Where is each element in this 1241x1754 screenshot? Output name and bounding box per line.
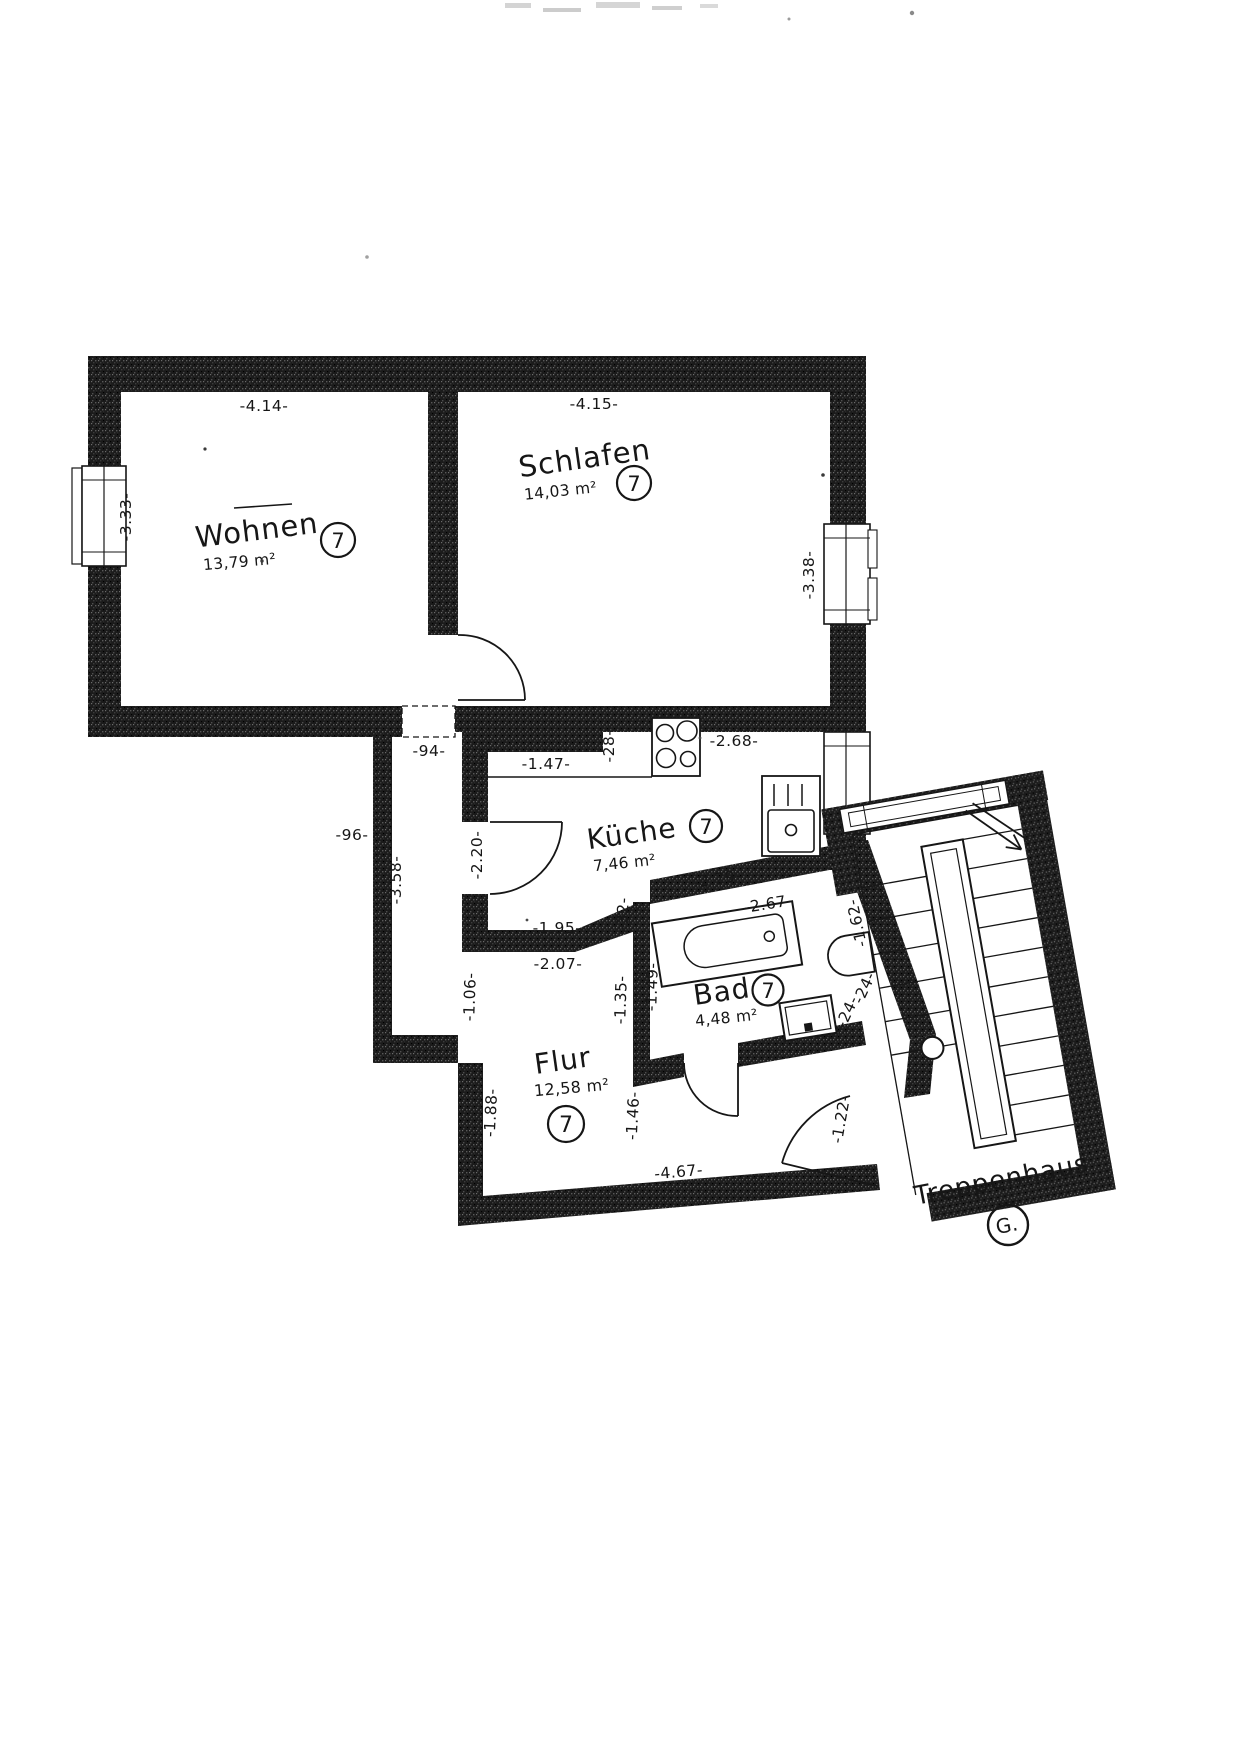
dim-opening-94: -94- (413, 742, 446, 760)
room-labels: Wohnen 13,79 m² 7 Schlafen 14,03 m² 7 Kü… (193, 432, 1091, 1245)
wall-kueche-top (455, 706, 830, 732)
dim-wohnen-height: -3.33- (117, 493, 135, 542)
dim-corridor-358: -3.58- (387, 856, 405, 905)
dim-flur-146: -1.46- (623, 1091, 644, 1141)
dim-flur-188: -1.88- (481, 1088, 502, 1138)
unit-number-bad: 7 (761, 979, 774, 1003)
wall-kueche-ledge (488, 732, 603, 752)
dim-flur-106: -1.06- (460, 972, 480, 1021)
dim-kueche-195: -1.95- (533, 919, 582, 937)
wall-kueche-left-upper (462, 732, 488, 822)
unit-number-wohnen: 7 (331, 529, 344, 553)
room-name-flur: Flur (532, 1040, 593, 1081)
room-name-bad: Bad (691, 971, 752, 1012)
kitchen-sink-icon (762, 776, 820, 856)
dim-flur-207: -2.07- (534, 955, 583, 973)
dim-wohnen-width: -4.14- (240, 397, 289, 415)
dim-bad-229: -2.29- (692, 866, 743, 891)
unit-number-schlafen: 7 (627, 472, 640, 496)
opening-wohnen-corridor (402, 706, 455, 737)
floor-letter-treppenhaus: G. (994, 1211, 1020, 1239)
floor-plan-drawing: -4.14- -4.15- -3.33- -3.38- -94- -96- -3… (0, 0, 1241, 1754)
dim-corridor-96: -96- (336, 826, 369, 844)
door-schlafen (458, 635, 525, 700)
room-label-kueche: Küche 7,46 m² 7 (585, 810, 722, 875)
dim-kueche-28: -28- (600, 730, 618, 763)
dim-schlafen-height: -3.38- (800, 551, 818, 600)
dim-entrance-122: -1.22- (828, 1094, 854, 1145)
unit-number-flur: 7 (559, 1113, 573, 1138)
window-schlafen-right (824, 524, 877, 624)
wall-treppenhaus-right (1012, 771, 1115, 1195)
wall-kueche-left-lower (462, 894, 488, 934)
room-label-wohnen: Wohnen 13,79 m² 7 (193, 504, 355, 574)
room-label-schlafen: Schlafen 14,03 m² 7 (516, 432, 652, 504)
dim-kueche-268: -2.68- (710, 732, 759, 750)
dim-kueche-32: -32- (613, 897, 633, 931)
room-name-kueche: Küche (585, 811, 679, 856)
unit-number-kueche: 7 (699, 815, 712, 839)
room-area-wohnen: 13,79 m² (202, 550, 276, 574)
scan-stroke-artifact (234, 504, 292, 508)
wall-top-outer (88, 356, 866, 392)
wall-wohnen-bottom (121, 706, 402, 737)
dim-kueche-147: -1.47- (522, 755, 571, 773)
stair-stringer-wall (921, 839, 1015, 1148)
dim-bad-149: -1.49- (642, 962, 662, 1011)
wall-corridor-step (373, 1035, 458, 1063)
toilet-icon (779, 995, 836, 1041)
room-area-kueche: 7,46 m² (592, 851, 656, 875)
wall-flur-left (458, 1063, 483, 1198)
dim-kueche-door-220: -2.20- (468, 831, 486, 880)
room-name-wohnen: Wohnen (193, 506, 320, 555)
wall-wohnen-schlafen-divider (428, 392, 458, 635)
door-kueche (490, 822, 562, 894)
floor-plan-page: -4.14- -4.15- -3.33- -3.38- -94- -96- -3… (0, 0, 1241, 1754)
stove-icon (652, 718, 700, 776)
dim-flur-135: -1.35- (611, 975, 631, 1024)
room-label-flur: Flur 12,58 m² 7 (532, 1040, 610, 1142)
room-label-bad: Bad 4,48 m² 7 (691, 971, 783, 1030)
dim-schlafen-width: -4.15- (570, 395, 619, 413)
door-bad (684, 1063, 738, 1116)
